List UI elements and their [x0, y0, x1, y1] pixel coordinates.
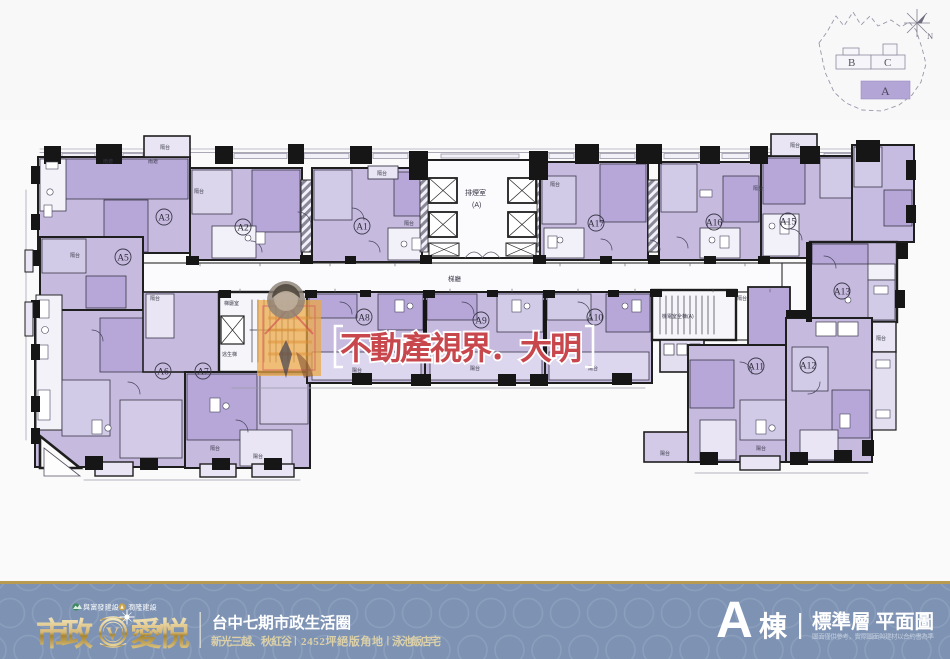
svg-text:C: C	[884, 57, 891, 69]
svg-text:隔台: 隔台	[404, 220, 414, 227]
svg-text:雨遮: 雨遮	[148, 158, 158, 165]
svg-text:A10: A10	[587, 314, 604, 324]
svg-text:雨遮: 雨遮	[103, 158, 113, 165]
svg-text:陽台: 陽台	[756, 445, 766, 452]
svg-text:潤隆建設: 潤隆建設	[128, 603, 157, 612]
svg-text:A1: A1	[356, 223, 368, 233]
svg-text:不動產視界．大明: 不動產視界．大明	[340, 330, 582, 366]
svg-text:A7: A7	[197, 368, 209, 378]
svg-text:隔台: 隔台	[550, 181, 560, 188]
svg-text:隔台: 隔台	[753, 185, 763, 192]
svg-text:圖面僅供參考，實際圖面與建材以合約書為準: 圖面僅供參考，實際圖面與建材以合約書為準	[812, 632, 935, 641]
svg-text:市政: 市政	[36, 616, 93, 652]
svg-text:2452坪絕版角地: 2452坪絕版角地	[301, 634, 383, 648]
svg-text:A: A	[881, 84, 890, 98]
svg-text:隔台: 隔台	[150, 295, 160, 302]
svg-text:陽台: 陽台	[660, 450, 670, 457]
svg-text:A16: A16	[706, 219, 723, 229]
svg-text:A17: A17	[588, 220, 605, 230]
svg-text:隔台: 隔台	[377, 170, 387, 177]
svg-text:陽台: 陽台	[352, 367, 362, 374]
svg-text:梯廳: 梯廳	[448, 274, 462, 283]
svg-text:標準層 平面圖: 標準層 平面圖	[812, 610, 934, 633]
svg-text:隔台: 隔台	[194, 188, 204, 195]
svg-text:A11: A11	[748, 363, 764, 373]
svg-text:棟: 棟	[759, 611, 788, 643]
svg-text:逃生梯: 逃生梯	[222, 351, 237, 358]
svg-text:泳池飯店宅: 泳池飯店宅	[392, 634, 441, 648]
svg-text:梯廳室: 梯廳室	[224, 300, 239, 307]
svg-text:新光三越、秋紅谷: 新光三越、秋紅谷	[211, 634, 293, 648]
svg-text:排煙室: 排煙室	[465, 188, 486, 197]
svg-text:陽台: 陽台	[470, 365, 480, 372]
svg-text:V: V	[106, 624, 119, 644]
svg-text:A: A	[716, 591, 753, 648]
svg-text:A6: A6	[157, 368, 169, 378]
svg-text:台中七期市政生活圈: 台中七期市政生活圈	[212, 613, 351, 632]
svg-text:隔台: 隔台	[210, 445, 220, 452]
svg-text:A5: A5	[117, 254, 129, 264]
svg-text:隔台: 隔台	[737, 295, 747, 302]
svg-text:B: B	[848, 57, 855, 69]
svg-text:A9: A9	[475, 317, 487, 327]
svg-text:機電室全棟(A): 機電室全棟(A)	[662, 313, 694, 320]
svg-text:陽台: 陽台	[253, 453, 263, 460]
svg-text:隔台: 隔台	[160, 144, 170, 151]
svg-text:A8: A8	[358, 314, 370, 324]
svg-text:A2: A2	[237, 224, 249, 234]
svg-text:隔台: 隔台	[790, 142, 800, 149]
svg-text:A12: A12	[800, 362, 817, 372]
svg-text:隔台: 隔台	[876, 335, 886, 342]
svg-text:與富發建設: 與富發建設	[83, 603, 119, 612]
svg-text:A15: A15	[780, 218, 797, 228]
svg-text:A3: A3	[158, 214, 170, 224]
svg-text:隔台: 隔台	[70, 252, 80, 259]
svg-text:A13: A13	[834, 288, 851, 298]
svg-text:(A): (A)	[472, 202, 481, 209]
svg-text:N: N	[927, 31, 933, 41]
svg-text:愛悦: 愛悦	[130, 616, 190, 652]
